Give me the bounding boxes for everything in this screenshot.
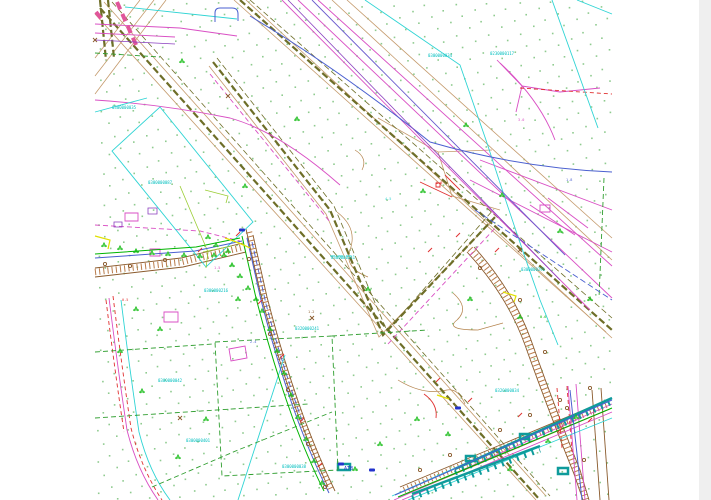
vegetation-dot — [104, 236, 106, 238]
vegetation-dot — [605, 163, 607, 165]
vegetation-dot — [105, 299, 107, 301]
vegetation-dot — [323, 262, 325, 264]
vegetation-dot — [234, 182, 236, 184]
vegetation-dot — [587, 220, 589, 222]
vegetation-dot — [181, 83, 183, 85]
vegetation-dot — [475, 41, 477, 43]
vegetation-dot — [403, 350, 405, 352]
vegetation-dot — [610, 112, 612, 114]
vegetation-dot — [485, 416, 487, 418]
vegetation-dot — [257, 107, 259, 109]
vegetation-dot — [222, 190, 224, 192]
vegetation-dot — [513, 228, 515, 230]
vegetation-dot — [299, 8, 301, 10]
vegetation-dot — [344, 299, 346, 301]
vegetation-dot — [294, 55, 296, 57]
vegetation-dot — [351, 75, 353, 77]
vegetation-dot — [404, 412, 406, 414]
vegetation-dot — [224, 45, 226, 47]
vegetation-dot — [325, 293, 327, 295]
vegetation-dot — [227, 378, 229, 380]
vegetation-dot — [329, 7, 331, 9]
vegetation-dot — [545, 51, 547, 53]
vegetation-dot — [371, 174, 373, 176]
vegetation-dot — [243, 19, 245, 21]
vegetation-dot — [442, 10, 444, 12]
vegetation-dot — [584, 332, 586, 334]
vegetation-dot — [384, 342, 386, 344]
vegetation-dot — [504, 120, 506, 122]
vegetation-dot — [439, 298, 441, 300]
vegetation-dot — [337, 493, 339, 495]
vegetation-dot — [320, 344, 322, 346]
pink-road-thick — [117, 2, 137, 47]
vegetation-dot — [244, 82, 246, 84]
vegetation-dot — [242, 432, 244, 434]
vegetation-dot — [570, 275, 572, 277]
vegetation-dot — [276, 81, 278, 83]
vegetation-dot — [456, 35, 458, 37]
vegetation-dot — [289, 106, 291, 108]
vegetation-dot — [472, 121, 474, 123]
vegetation-dot — [607, 18, 609, 20]
vegetation-dot — [266, 389, 268, 391]
tree-icon — [557, 229, 563, 233]
vegetation-dot — [360, 386, 362, 388]
vegetation-dot — [435, 141, 437, 143]
vegetation-dot — [380, 454, 382, 456]
vegetation-dot — [179, 197, 181, 199]
vegetation-dot — [515, 51, 517, 53]
vegetation-dot — [462, 223, 464, 225]
vegetation-dot — [510, 102, 512, 104]
vegetation-dot — [196, 171, 198, 173]
vegetation-dot — [456, 448, 458, 450]
vegetation-dot — [122, 179, 124, 181]
vegetation-dot — [509, 371, 511, 373]
vegetation-dot — [160, 223, 162, 225]
vegetation-dot — [438, 267, 440, 269]
vegetation-dot — [370, 288, 372, 290]
vegetation-dot — [480, 403, 482, 405]
vegetation-dot — [576, 19, 578, 21]
vegetation-dot — [208, 134, 210, 136]
vegetation-dot — [352, 281, 354, 283]
vegetation-dot — [414, 310, 416, 312]
vegetation-dot — [256, 489, 258, 491]
vegetation-dot — [333, 163, 335, 165]
vegetation-dot — [499, 171, 501, 173]
vegetation-dot — [154, 479, 156, 481]
vegetation-dot — [237, 307, 239, 309]
vegetation-dot — [350, 44, 352, 46]
vegetation-dot — [298, 243, 300, 245]
vegetation-dot — [123, 210, 125, 212]
vegetation-dot — [151, 354, 153, 356]
vegetation-dot — [495, 253, 497, 255]
vegetation-dot — [477, 340, 479, 342]
vegetation-dot — [594, 470, 596, 472]
vegetation-dot — [187, 65, 189, 67]
vegetation-dot — [534, 358, 536, 360]
vegetation-dot — [175, 72, 177, 74]
vegetation-dot — [165, 172, 167, 174]
vegetation-dot — [237, 338, 239, 340]
vegetation-dot — [296, 356, 298, 358]
vegetation-dot — [463, 285, 465, 287]
vegetation-dot — [392, 211, 394, 213]
map-label: 3.0 — [518, 118, 524, 122]
vegetation-dot — [550, 1, 552, 3]
vegetation-dot — [198, 202, 200, 204]
vegetation-dot — [128, 192, 130, 194]
vegetation-dot — [251, 64, 253, 66]
vegetation-dot — [170, 90, 172, 92]
vegetation-dot — [243, 464, 245, 466]
vegetation-dot — [540, 102, 542, 104]
vegetation-dot — [338, 81, 340, 83]
vegetation-dot — [434, 349, 436, 351]
vegetation-dot — [229, 233, 231, 235]
vegetation-dot — [428, 335, 430, 337]
vegetation-dot — [164, 348, 166, 350]
vegetation-dot — [237, 8, 239, 10]
vegetation-dot — [174, 277, 176, 279]
vegetation-dot — [300, 37, 302, 39]
green-utilities — [95, 236, 612, 497]
vegetation-dot — [157, 129, 159, 131]
vegetation-dot — [353, 406, 355, 408]
vegetation-dot — [286, 12, 288, 14]
vegetation-dot — [483, 84, 485, 86]
vegetation-dot — [275, 463, 277, 465]
vegetation-dot — [153, 209, 155, 211]
vegetation-dot — [507, 484, 509, 486]
vegetation-dot — [491, 97, 493, 99]
vegetation-dot — [249, 33, 251, 35]
vegetation-dot — [501, 58, 503, 60]
vegetation-dot — [405, 29, 407, 31]
map-label: 0.5 — [122, 298, 128, 302]
vegetation-dot — [255, 220, 257, 222]
vegetation-dot — [446, 310, 448, 312]
vegetation-dot — [563, 25, 565, 27]
vegetation-dot — [386, 436, 388, 438]
vegetation-dot — [205, 8, 207, 10]
vegetation-dot — [424, 210, 426, 212]
map-label: ATB — [344, 466, 353, 472]
vegetation-dot — [317, 219, 319, 221]
vegetation-dot — [154, 4, 156, 6]
vegetation-dot — [585, 425, 587, 427]
vegetation-dot — [205, 277, 207, 279]
vegetation-dot — [138, 360, 140, 362]
vegetation-dot — [533, 296, 535, 298]
vegetation-dot — [408, 299, 410, 301]
vegetation-dot — [286, 488, 288, 490]
vegetation-dot — [262, 471, 264, 473]
vegetation-dot — [586, 188, 588, 190]
vegetation-dot — [376, 123, 378, 125]
vegetation-dot — [175, 309, 177, 311]
vegetation-dot — [513, 496, 515, 498]
vegetation-dot — [389, 117, 391, 119]
vegetation-dot — [468, 235, 470, 237]
vegetation-dot — [267, 7, 269, 9]
vegetation-dot — [113, 73, 115, 75]
red-utilities — [420, 175, 460, 418]
vegetation-dot — [254, 426, 256, 428]
vegetation-dot — [126, 335, 128, 337]
vegetation-dot — [178, 403, 180, 405]
vegetation-dot — [165, 442, 167, 444]
vegetation-dot — [341, 175, 343, 177]
vegetation-dot — [122, 449, 124, 451]
vegetation-dot — [609, 319, 611, 321]
survey-tick-icon — [518, 413, 522, 417]
red-dashed — [106, 300, 124, 432]
vegetation-dot — [496, 77, 498, 79]
green-parcel-dashed — [95, 404, 308, 418]
vegetation-dot — [286, 425, 288, 427]
vegetation-dot — [485, 115, 487, 117]
vegetation-dot — [140, 423, 142, 425]
vegetation-dot — [208, 402, 210, 404]
blue-utilities — [247, 238, 329, 493]
vegetation-dot — [113, 373, 115, 375]
vegetation-dot — [598, 388, 600, 390]
vegetation-dot — [103, 475, 105, 477]
vegetation-dot — [192, 459, 194, 461]
vegetation-dot — [161, 254, 163, 256]
vegetation-dot — [122, 480, 124, 482]
vegetation-dot — [306, 288, 308, 290]
vegetation-dot — [466, 379, 468, 381]
vegetation-dot — [401, 287, 403, 289]
vegetation-dot — [280, 1, 282, 3]
vegetation-dot — [105, 29, 107, 31]
vegetation-dot — [415, 373, 417, 375]
vegetation-dot — [529, 409, 531, 411]
vegetation-dot — [377, 362, 379, 364]
vegetation-dot — [425, 273, 427, 275]
vegetation-dot — [181, 322, 183, 324]
vegetation-dot — [290, 345, 292, 347]
vegetation-dot — [522, 364, 524, 366]
vegetation-dot — [422, 355, 424, 357]
survey-tick-icon — [468, 398, 472, 402]
vegetation-dot — [405, 174, 407, 176]
vegetation-dot — [142, 278, 144, 280]
vegetation-dot — [243, 51, 245, 53]
map-label: 0300000042 — [158, 378, 183, 383]
vegetation-dot — [418, 199, 420, 201]
vegetation-dot — [300, 100, 302, 102]
vegetation-dot — [99, 256, 101, 258]
vegetation-dot — [560, 346, 562, 348]
vegetation-dot — [102, 381, 104, 383]
vegetation-dot — [313, 94, 315, 96]
vegetation-dot — [274, 257, 276, 259]
vegetation-dot — [157, 98, 159, 100]
vegetation-dot — [110, 216, 112, 218]
vegetation-dot — [145, 372, 147, 374]
vegetation-dot — [414, 279, 416, 281]
vegetation-dot — [268, 38, 270, 40]
vegetation-dot — [494, 490, 496, 492]
vegetation-dot — [305, 493, 307, 495]
vegetation-dot — [506, 245, 508, 247]
vegetation-dot — [547, 113, 549, 115]
vegetation-dot — [184, 177, 186, 179]
vegetation-dot — [368, 225, 370, 227]
vegetation-dot — [235, 421, 237, 423]
vegetation-dot — [503, 359, 505, 361]
vegetation-dot — [361, 417, 363, 419]
vegetation-dot — [176, 134, 178, 136]
vegetation-dot — [505, 152, 507, 154]
vegetation-dot — [184, 447, 186, 449]
vegetation-dot — [116, 467, 118, 469]
vegetation-dot — [546, 289, 548, 291]
vegetation-dot — [260, 201, 262, 203]
vegetation-dot — [200, 89, 202, 91]
vegetation-dot — [590, 44, 592, 46]
vegetation-dot — [237, 483, 239, 485]
vegetation-dot — [265, 150, 267, 152]
vegetation-dot — [594, 200, 596, 202]
vegetation-dot — [279, 175, 281, 177]
tree-icon — [245, 286, 251, 290]
vegetation-dot — [347, 361, 349, 363]
vegetation-dot — [173, 9, 175, 11]
vegetation-dot — [570, 244, 572, 246]
vegetation-dot — [194, 77, 196, 79]
vegetation-dot — [404, 381, 406, 383]
vegetation-dot — [437, 59, 439, 61]
vegetation-dot — [239, 133, 241, 135]
vegetation-dot — [183, 385, 185, 387]
vegetation-dot — [245, 321, 247, 323]
vegetation-dot — [375, 474, 377, 476]
vegetation-dot — [118, 22, 120, 24]
vegetation-dot — [548, 176, 550, 178]
vegetation-dot — [581, 206, 583, 208]
vegetation-dot — [124, 4, 126, 6]
vegetation-dot — [221, 364, 223, 366]
tree-icon — [221, 253, 227, 257]
vegetation-dot — [126, 367, 128, 369]
vegetation-dot — [387, 262, 389, 264]
vegetation-dot — [577, 50, 579, 52]
vegetation-dot — [430, 224, 432, 226]
map-label: 0300000087 — [148, 180, 173, 185]
vegetation-dot — [472, 90, 474, 92]
vegetation-dot — [291, 439, 293, 441]
vegetation-dot — [308, 143, 310, 145]
vegetation-dot — [326, 87, 328, 89]
vegetation-dot — [198, 234, 200, 236]
vegetation-dot — [181, 52, 183, 54]
vegetation-dot — [555, 395, 557, 397]
vegetation-dot — [399, 430, 401, 432]
vegetation-dot — [203, 453, 205, 455]
vegetation-dot — [387, 231, 389, 233]
vegetation-dot — [272, 400, 274, 402]
vegetation-dot — [533, 327, 535, 329]
vegetation-dot — [260, 169, 262, 171]
vegetation-dot — [444, 278, 446, 280]
vegetation-dot — [413, 42, 415, 44]
vegetation-dot — [213, 51, 215, 53]
magenta-dashed — [95, 74, 497, 344]
vegetation-dot — [106, 91, 108, 93]
vegetation-dot — [231, 295, 233, 297]
vegetation-dot — [453, 354, 455, 356]
vegetation-dot — [350, 486, 352, 488]
vegetation-dot — [543, 227, 545, 229]
vegetation-dot — [328, 211, 330, 213]
vegetation-dot — [418, 436, 420, 438]
vegetation-dot — [272, 369, 274, 371]
tree-icon — [205, 235, 211, 239]
vegetation-dot — [579, 382, 581, 384]
vegetation-dot — [303, 194, 305, 196]
vegetation-dot — [424, 449, 426, 451]
vegetation-dot — [477, 72, 479, 74]
vegetation-dot — [347, 218, 349, 220]
vegetation-dot — [369, 492, 371, 494]
vegetation-dot — [566, 357, 568, 359]
vegetation-dot — [165, 141, 167, 143]
vegetation-dot — [535, 151, 537, 153]
vegetation-dot — [224, 489, 226, 491]
tree-icon — [463, 123, 469, 127]
vegetation-dot — [351, 106, 353, 108]
vegetation-dot — [133, 141, 135, 143]
vegetation-dot — [340, 144, 342, 146]
vegetation-dot — [609, 382, 611, 384]
vegetation-dot — [109, 185, 111, 187]
vegetation-dot — [318, 13, 320, 15]
vegetation-dot — [423, 148, 425, 150]
vegetation-dot — [346, 155, 348, 157]
vegetation-dot — [157, 366, 159, 368]
vegetation-dot — [310, 382, 312, 384]
vegetation-dot — [361, 449, 363, 451]
vegetation-dot — [432, 110, 434, 112]
vegetation-dot — [525, 14, 527, 16]
vegetation-dot — [431, 16, 433, 18]
vegetation-dot — [380, 423, 382, 425]
vegetation-dot — [338, 287, 340, 289]
vegetation-dot — [469, 27, 471, 29]
vegetation-dot — [412, 455, 414, 457]
vegetation-dot — [375, 237, 377, 239]
vegetation-dot — [394, 37, 396, 39]
magenta-utilities — [500, 63, 555, 140]
vegetation-dot — [275, 494, 277, 496]
vegetation-dot — [539, 39, 541, 41]
map-label: 0230000117 — [490, 51, 515, 56]
vegetation-dot — [162, 15, 164, 17]
vegetation-dot — [229, 440, 231, 442]
vegetation-dot — [395, 305, 397, 307]
vegetation-dot — [147, 466, 149, 468]
vegetation-dot — [118, 292, 120, 294]
vegetation-dot — [197, 410, 199, 412]
vegetation-dot — [360, 181, 362, 183]
